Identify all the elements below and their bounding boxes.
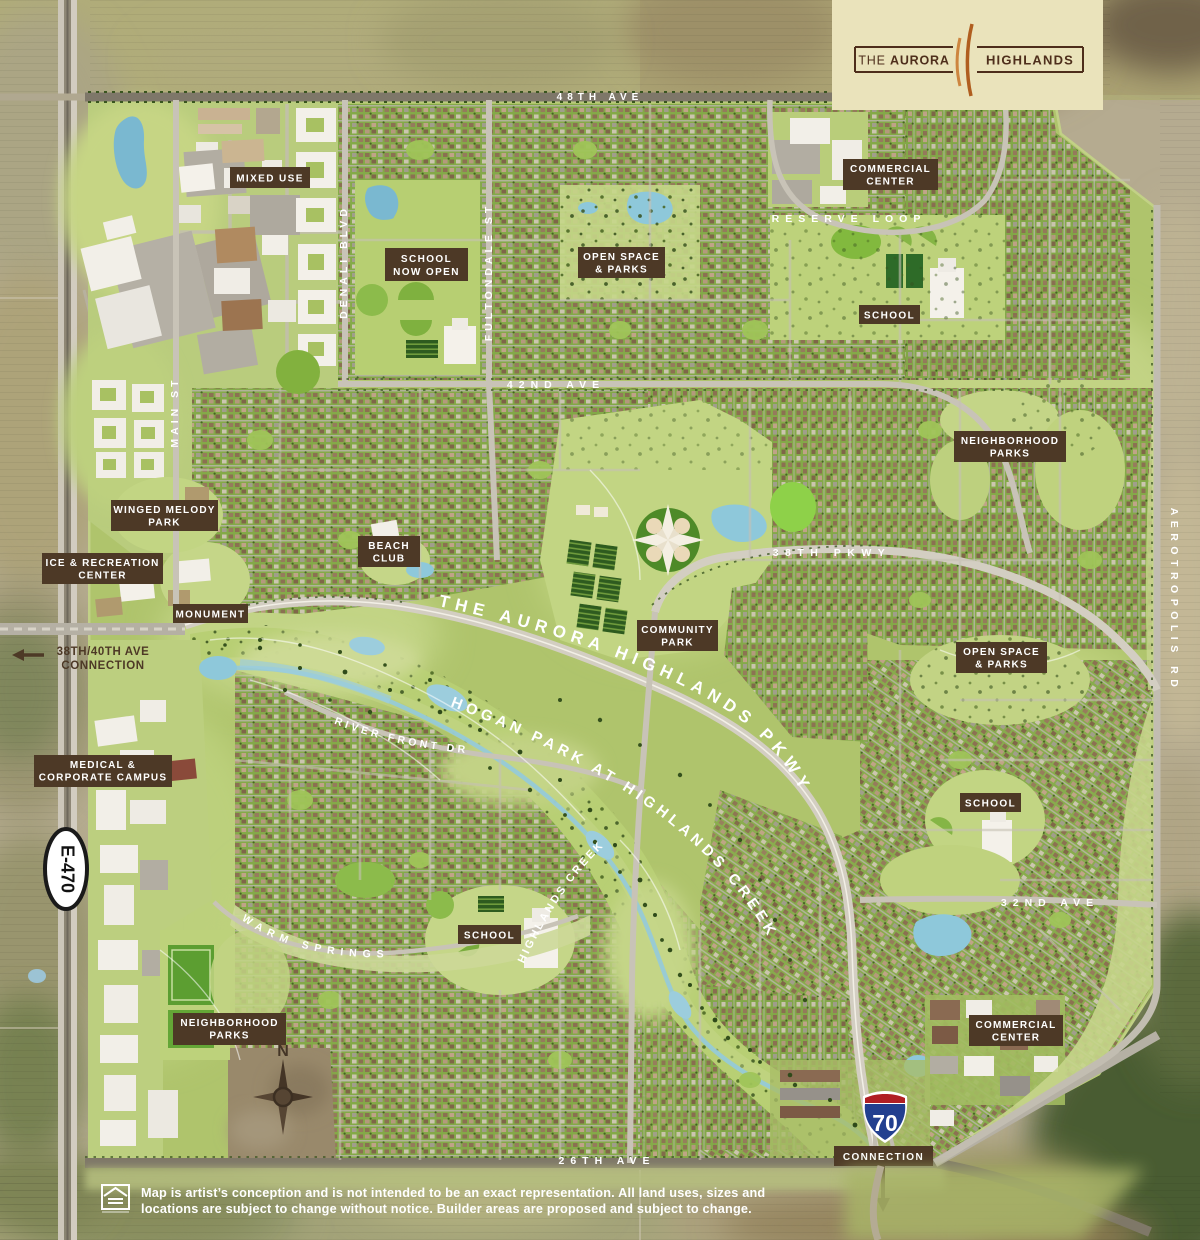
svg-text:48TH AVE: 48TH AVE xyxy=(557,92,644,103)
svg-text:70: 70 xyxy=(872,1110,898,1136)
svg-text:COMMERCIAL: COMMERCIAL xyxy=(976,1020,1057,1031)
svg-text:Map is artist’s conception and: Map is artist’s conception and is not in… xyxy=(141,1186,765,1200)
svg-text:DENALI BLVD: DENALI BLVD xyxy=(338,205,350,319)
svg-text:& PARKS: & PARKS xyxy=(975,660,1028,671)
svg-text:38TH/40TH AVE: 38TH/40TH AVE xyxy=(57,646,150,658)
svg-text:NOW OPEN: NOW OPEN xyxy=(393,267,460,278)
svg-text:PARK: PARK xyxy=(661,638,693,649)
svg-text:CONNECTION: CONNECTION xyxy=(843,1152,924,1163)
svg-text:locations are subject to chang: locations are subject to change without … xyxy=(141,1202,752,1216)
svg-text:CENTER: CENTER xyxy=(78,571,126,582)
svg-text:NEIGHBORHOOD: NEIGHBORHOOD xyxy=(961,436,1059,447)
svg-text:HIGHLANDS: HIGHLANDS xyxy=(986,53,1074,68)
svg-text:PARKS: PARKS xyxy=(990,449,1030,460)
svg-text:CORPORATE CAMPUS: CORPORATE CAMPUS xyxy=(39,773,167,784)
svg-text:BEACH: BEACH xyxy=(368,541,410,552)
svg-text:SCHOOL: SCHOOL xyxy=(401,254,452,265)
svg-text:COMMERCIAL: COMMERCIAL xyxy=(850,164,931,175)
svg-text:SCHOOL: SCHOOL xyxy=(864,311,915,322)
svg-text:RESERVE LOOP: RESERVE LOOP xyxy=(772,213,927,225)
svg-text:AEROTROPOLIS RD: AEROTROPOLIS RD xyxy=(1168,508,1180,693)
svg-text:PARK: PARK xyxy=(148,518,180,529)
svg-text:MEDICAL &: MEDICAL & xyxy=(70,760,136,771)
svg-text:CENTER: CENTER xyxy=(992,1033,1040,1044)
svg-text:MONUMENT: MONUMENT xyxy=(175,610,245,621)
svg-text:ICE & RECREATION: ICE & RECREATION xyxy=(45,558,159,569)
svg-text:MAIN ST: MAIN ST xyxy=(169,376,181,447)
svg-text:MIXED USE: MIXED USE xyxy=(236,174,304,185)
svg-text:FULTONDALE ST: FULTONDALE ST xyxy=(483,203,495,342)
svg-text:E-470: E-470 xyxy=(57,845,77,893)
svg-text:THE AURORA: THE AURORA xyxy=(858,54,949,68)
svg-text:OPEN SPACE: OPEN SPACE xyxy=(583,252,660,263)
svg-text:CENTER: CENTER xyxy=(866,177,914,188)
svg-text:CLUB: CLUB xyxy=(373,554,406,565)
svg-text:SCHOOL: SCHOOL xyxy=(464,931,515,942)
svg-text:WINGED MELODY: WINGED MELODY xyxy=(113,505,215,516)
svg-text:COMMUNITY: COMMUNITY xyxy=(641,625,713,636)
svg-text:42ND AVE: 42ND AVE xyxy=(507,379,605,391)
svg-text:PARKS: PARKS xyxy=(209,1031,249,1042)
svg-text:& PARKS: & PARKS xyxy=(595,265,648,276)
svg-text:CONNECTION: CONNECTION xyxy=(61,660,144,672)
svg-text:SCHOOL: SCHOOL xyxy=(965,799,1016,810)
svg-text:NEIGHBORHOOD: NEIGHBORHOOD xyxy=(180,1018,278,1029)
svg-text:OPEN SPACE: OPEN SPACE xyxy=(963,647,1040,658)
svg-text:32ND AVE: 32ND AVE xyxy=(1001,897,1099,909)
svg-text:26TH AVE: 26TH AVE xyxy=(558,1155,655,1167)
svg-text:N: N xyxy=(277,1043,289,1060)
svg-text:38TH PKWY: 38TH PKWY xyxy=(773,547,892,559)
